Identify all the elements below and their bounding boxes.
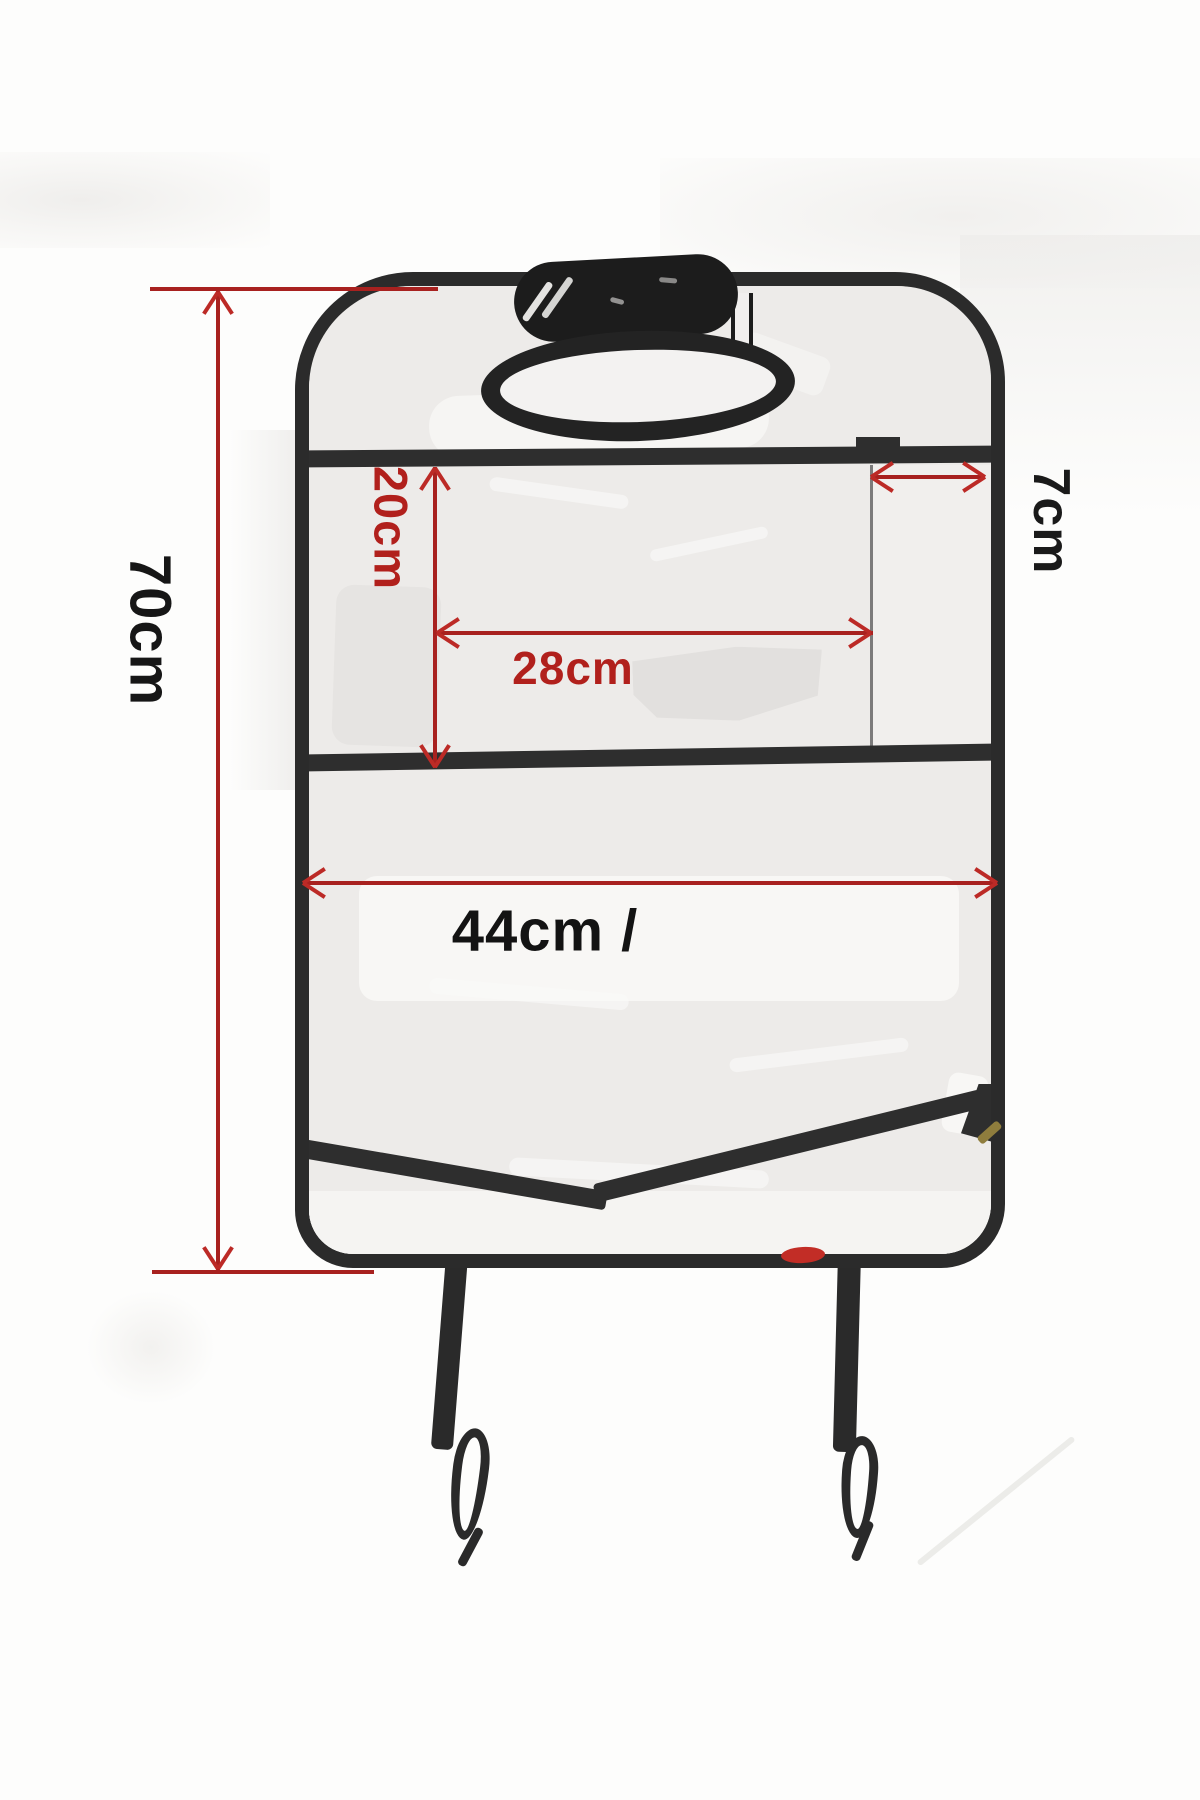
width-dimension-line bbox=[303, 881, 997, 885]
photo-artifact-streak bbox=[916, 1436, 1075, 1567]
surface-smudge bbox=[632, 644, 824, 725]
side-pocket-dimension-line bbox=[871, 475, 985, 479]
pocket-depth-dimension-line bbox=[433, 467, 437, 768]
crinkle-highlight bbox=[729, 1037, 909, 1073]
left-strap bbox=[431, 1255, 468, 1450]
side-pocket-dimension-label: 7cm bbox=[1021, 467, 1081, 574]
pocket-width-dimension-label: 28cm bbox=[512, 641, 634, 695]
background-wash bbox=[230, 430, 296, 790]
height-extension-line-top bbox=[150, 287, 438, 291]
middle-pocket-seam bbox=[309, 744, 991, 772]
pad-highlight bbox=[659, 277, 677, 284]
width-dimension-label: 44cm / bbox=[452, 898, 639, 965]
height-dimension-label: 70cm bbox=[117, 554, 184, 706]
crinkle-highlight bbox=[649, 526, 769, 563]
height-extension-line-bottom bbox=[152, 1270, 374, 1274]
pocket-divider-stitch bbox=[870, 465, 873, 759]
side-pocket-area bbox=[870, 465, 991, 750]
pad-highlight bbox=[610, 297, 625, 305]
background-wash bbox=[86, 1290, 216, 1405]
bottom-pocket-seam-right bbox=[593, 1089, 984, 1202]
crinkle-highlight bbox=[489, 476, 630, 509]
right-strap bbox=[833, 1254, 861, 1453]
pocket-depth-dimension-label: 20cm bbox=[364, 466, 419, 590]
headrest-strap-pad bbox=[512, 252, 740, 344]
top-pocket-seam-step bbox=[856, 437, 900, 451]
background-wash bbox=[660, 158, 1200, 288]
dimension-diagram: 70cm 20cm 28cm 7cm 44cm / bbox=[0, 0, 1200, 1800]
pocket-width-dimension-line bbox=[435, 631, 873, 635]
surface-smudge bbox=[331, 584, 442, 748]
background-wash bbox=[0, 152, 270, 248]
height-dimension-line bbox=[216, 290, 220, 1272]
bottom-pocket-area bbox=[309, 1191, 991, 1254]
